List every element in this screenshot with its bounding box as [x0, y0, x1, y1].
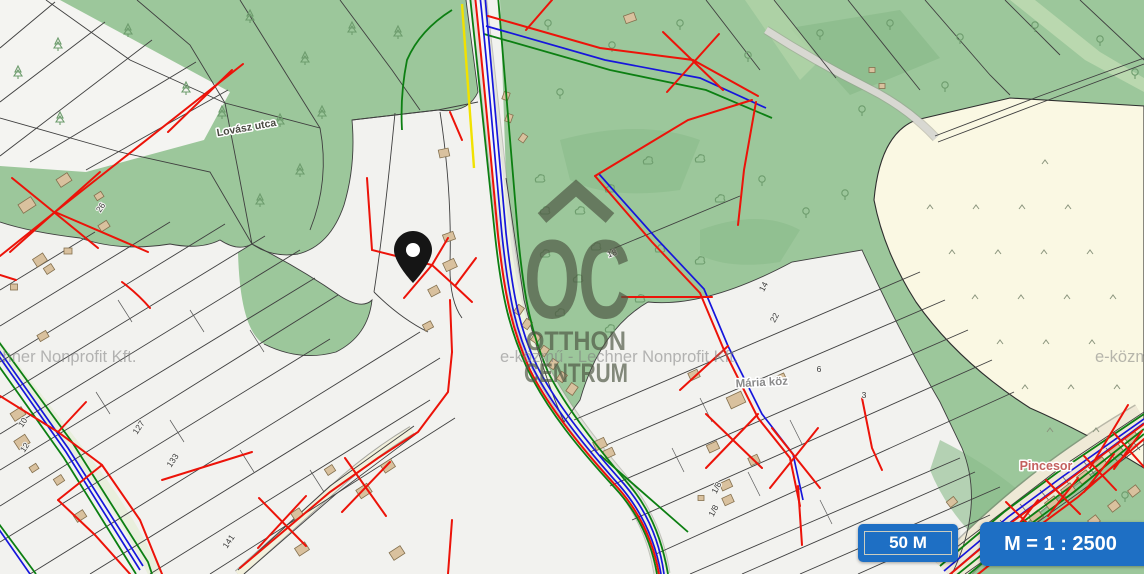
svg-text:OC: OC: [524, 217, 629, 342]
scale-bar-button[interactable]: 50 M: [858, 524, 958, 562]
svg-text:e-közmű - Lechner Nonprofit Kf: e-közmű - Lechner Nonprofit Kft.: [1095, 348, 1144, 366]
street-label-pincesor: Pincesor: [1020, 459, 1073, 473]
scale-bar-label: 50 M: [889, 533, 927, 553]
parcel-number: 6: [817, 364, 822, 374]
parcel-number: 3: [862, 390, 867, 400]
svg-text:CENTRUM: CENTRUM: [524, 358, 628, 388]
svg-text:e-közmű - Lechner Nonprofit Kf: e-közmű - Lechner Nonprofit Kft.: [0, 348, 136, 366]
svg-text:OTTHON: OTTHON: [526, 326, 626, 356]
map-canvas[interactable]: Lovász utca Mária köz Pincesor 127 133 1…: [0, 0, 1144, 574]
scale-ratio-label: M = 1 : 2500: [1004, 533, 1117, 556]
scale-ratio-button[interactable]: M = 1 : 2500: [980, 522, 1144, 566]
brand-watermark: OC OTTHON CENTRUM: [524, 188, 629, 388]
map-viewport[interactable]: Lovász utca Mária köz Pincesor 127 133 1…: [0, 0, 1144, 574]
